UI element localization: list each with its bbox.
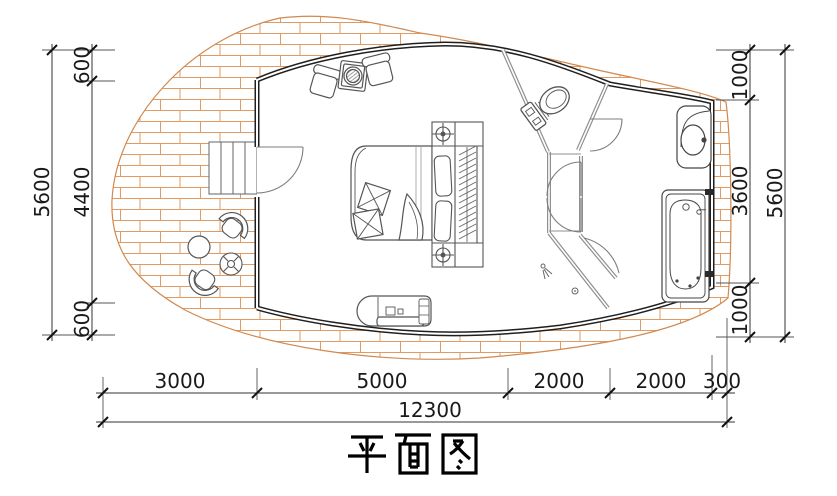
bed-cushion-2 xyxy=(353,209,383,239)
dim-label-right-3600: 3600 xyxy=(728,166,752,217)
double-bed xyxy=(351,146,432,240)
dim-label-bottom-300: 300 xyxy=(703,369,741,393)
entry-steps xyxy=(209,142,257,194)
dim-label-right-total: 5600 xyxy=(763,168,787,219)
dim-label-bottom-3000: 3000 xyxy=(155,369,206,393)
plan-title-glyphs xyxy=(348,435,476,473)
dim-right: 1000 3600 1000 5600 xyxy=(716,44,794,343)
washbasin xyxy=(677,106,711,168)
dim-label-bottom-5000: 5000 xyxy=(357,369,408,393)
floor-plan-canvas: 平面图 xyxy=(0,0,837,496)
dim-left: 600 4400 600 5600 xyxy=(30,44,115,341)
dim-label-left-4400: 4400 xyxy=(70,167,94,218)
floor-plan-svg: 600 4400 600 5600 1000 3600 1000 5600 30… xyxy=(0,0,837,496)
bed-pillow xyxy=(434,156,452,197)
kitchen-unit xyxy=(357,296,431,326)
dim-label-right-1000-top: 1000 xyxy=(728,50,752,101)
dim-label-right-1000-bottom: 1000 xyxy=(728,285,752,336)
dim-label-bottom-2000-a: 2000 xyxy=(534,369,585,393)
dim-label-left-600-top: 600 xyxy=(70,46,94,84)
dim-label-left-600-bottom: 600 xyxy=(70,300,94,338)
floor-drain-icon xyxy=(572,288,578,294)
bed-pillow xyxy=(434,201,452,242)
outdoor-stove xyxy=(220,253,242,275)
dim-label-left-total: 5600 xyxy=(30,167,54,218)
bathtub xyxy=(662,189,713,302)
outdoor-table xyxy=(188,236,210,258)
dim-label-bottom-total: 12300 xyxy=(398,398,462,422)
dim-label-bottom-2000-b: 2000 xyxy=(636,369,687,393)
